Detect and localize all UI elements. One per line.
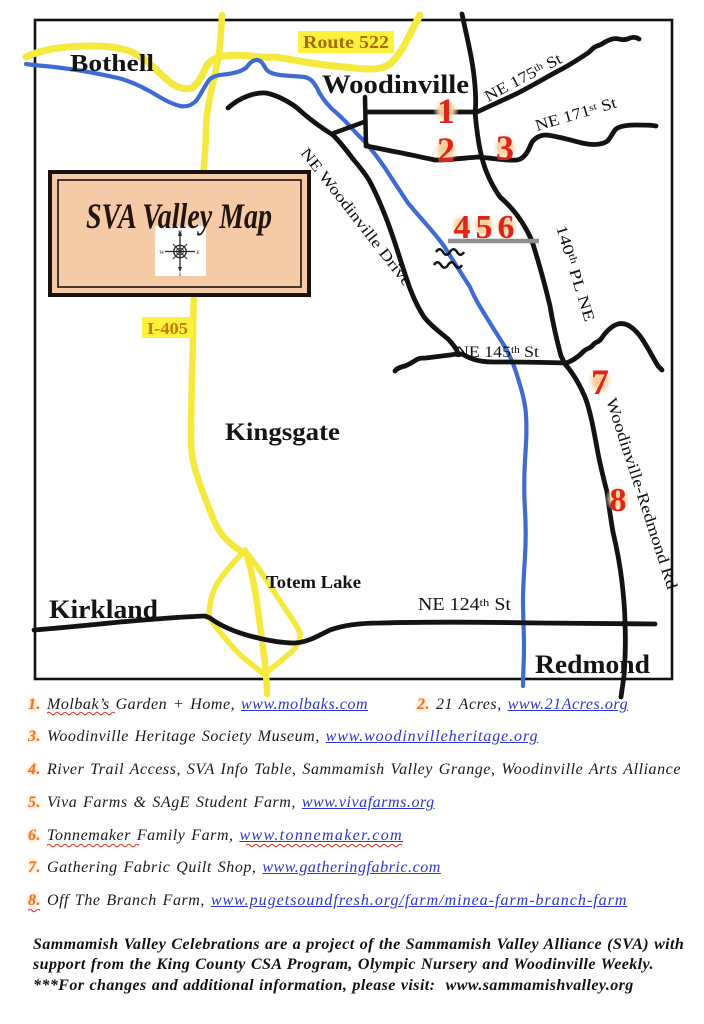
svg-text:Totem Lake: Totem Lake	[266, 572, 361, 592]
svg-text:8: 8	[610, 482, 627, 519]
svg-text:5: 5	[476, 209, 493, 246]
svg-text:3: 3	[496, 128, 514, 168]
svg-text:Bothell: Bothell	[70, 51, 154, 77]
svg-text:W: W	[159, 250, 165, 256]
svg-text:N: N	[178, 230, 182, 236]
svg-text:Redmond: Redmond	[535, 650, 651, 679]
svg-text:S: S	[178, 272, 181, 278]
svg-text:7: 7	[591, 362, 609, 402]
svg-text:NE 124th St: NE 124th St	[418, 594, 511, 614]
svg-text:NE 145th St: NE 145th St	[456, 344, 540, 361]
svg-text:1: 1	[437, 91, 455, 131]
svg-text:Kingsgate: Kingsgate	[225, 419, 340, 446]
svg-text:2: 2	[437, 130, 455, 170]
svg-text:4: 4	[454, 209, 471, 246]
svg-text:Route 522: Route 522	[303, 32, 389, 52]
svg-text:Kirkland: Kirkland	[49, 595, 159, 624]
svg-text:6: 6	[498, 209, 515, 246]
svg-text:I-405: I-405	[147, 319, 188, 338]
